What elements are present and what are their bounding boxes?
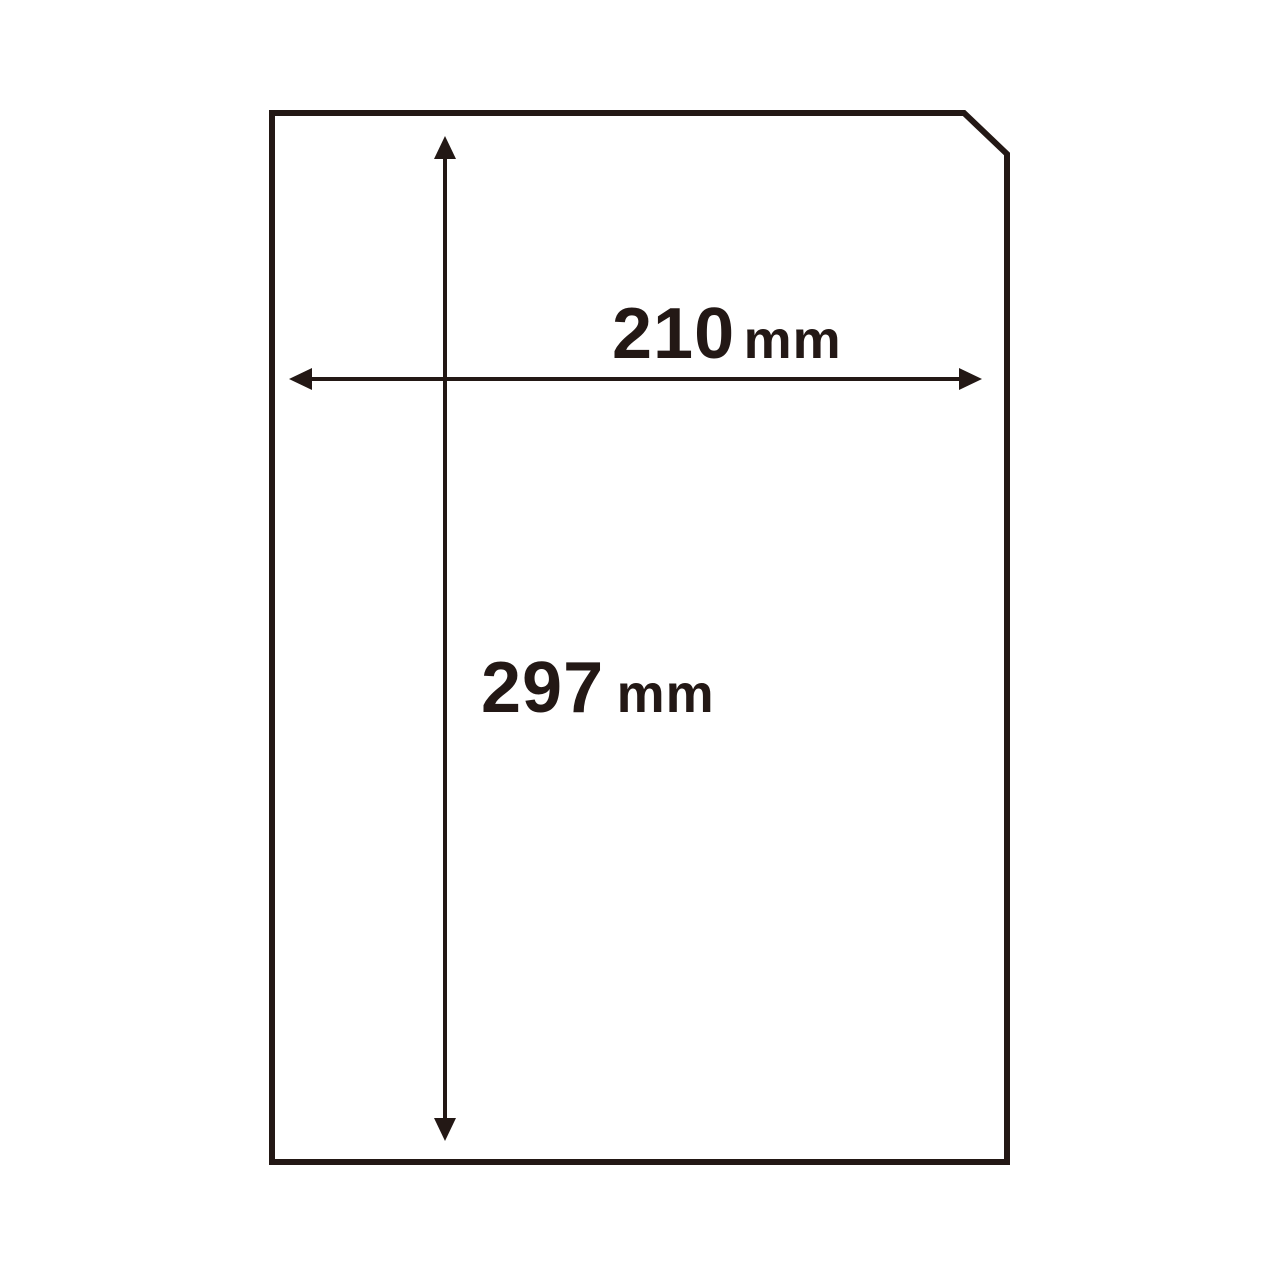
- paper-sheet-outline: [272, 113, 1007, 1162]
- height-dimension-unit: mm: [617, 664, 715, 724]
- width-dimension-unit: mm: [744, 310, 842, 370]
- a4-dimension-diagram: 210 mm 297 mm: [0, 0, 1280, 1280]
- diagram-canvas: 210 mm 297 mm: [0, 0, 1280, 1280]
- height-dimension-value: 297: [481, 648, 604, 728]
- width-dimension-value: 210: [612, 294, 735, 374]
